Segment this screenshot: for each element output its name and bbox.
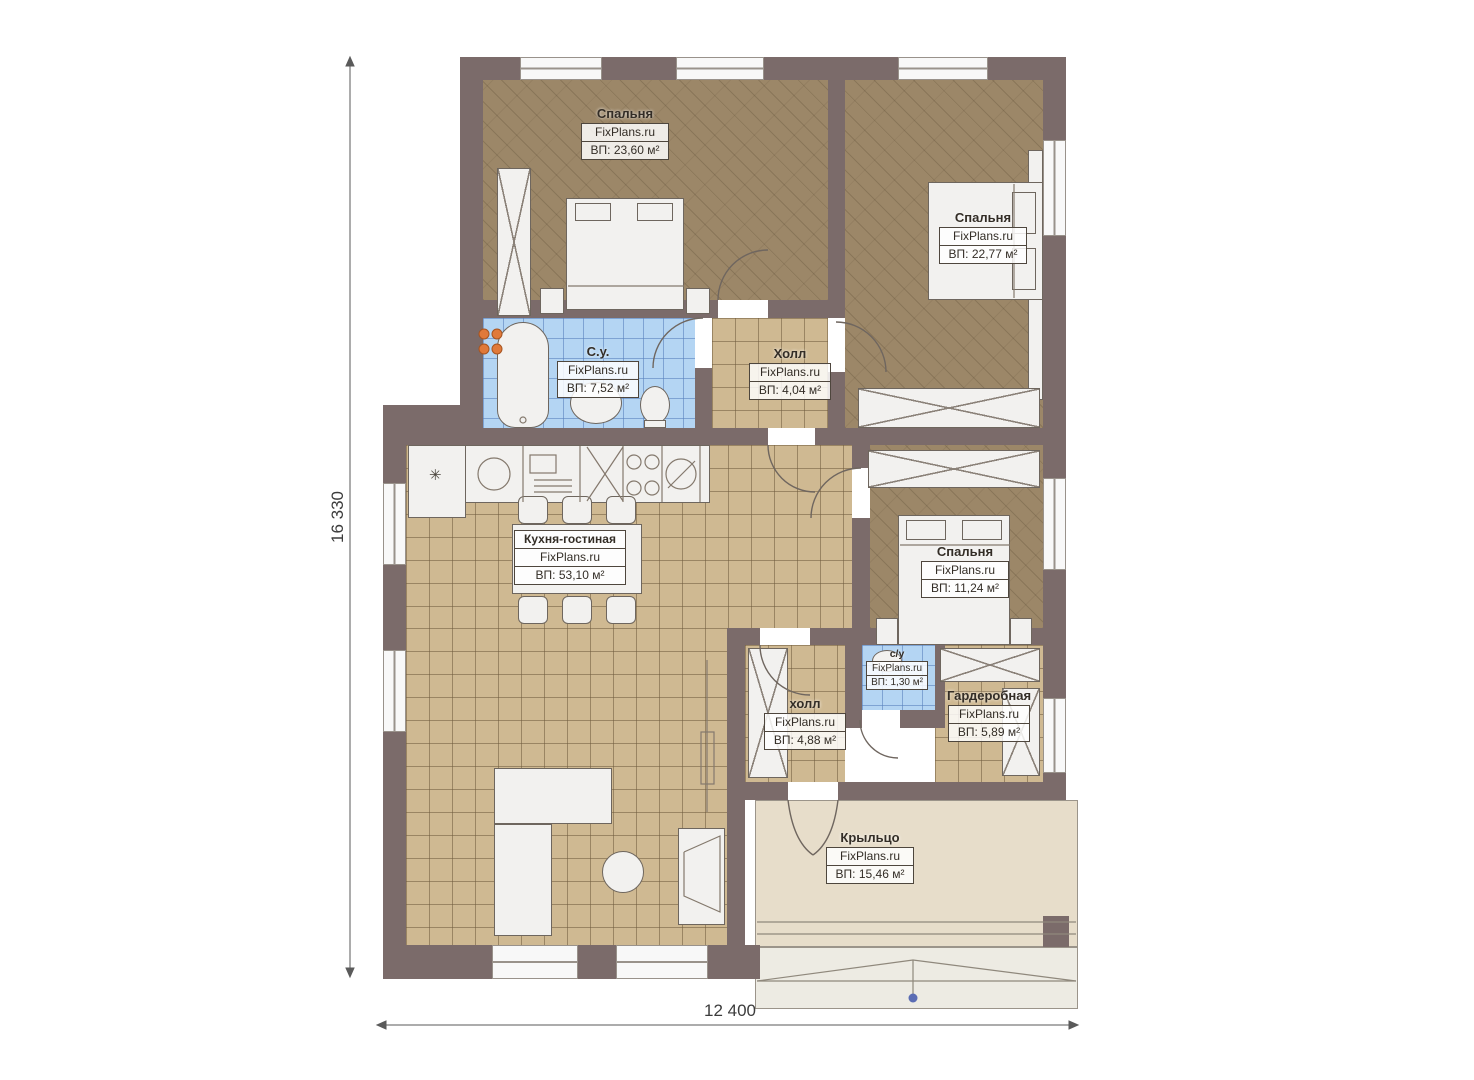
room-label-box: FixPlans.ru ВП: 4,04 м² [749, 363, 831, 400]
wall-hall2-left [727, 645, 745, 979]
room-name: холл [789, 696, 820, 711]
room-name: Спальня [955, 210, 1011, 225]
room-label-box: FixPlans.ru ВП: 23,60 м² [581, 123, 670, 160]
room-label-box: FixPlans.ru ВП: 7,52 м² [557, 361, 639, 398]
dining-chair [562, 496, 592, 524]
room-area: ВП: 4,88 м² [765, 731, 845, 749]
wall-bath-hall [695, 368, 712, 428]
brand-watermark: FixPlans.ru [867, 662, 927, 675]
porch-pillar [1043, 916, 1069, 947]
room-label-porch: Крыльцо FixPlans.ru ВП: 15,46 м² [790, 830, 950, 884]
window-left-2 [383, 650, 406, 732]
bedroom-2-wardrobe [858, 388, 1040, 428]
room-name: Гардеробная [947, 688, 1031, 703]
room-area: ВП: 53,10 м² [515, 566, 625, 584]
brand-watermark: FixPlans.ru [940, 228, 1027, 245]
brand-watermark: FixPlans.ru [582, 124, 669, 141]
brand-watermark: FixPlans.ru [558, 362, 638, 379]
room-area: ВП: 1,30 м² [867, 675, 927, 689]
bedroom-1-wardrobe [497, 168, 531, 316]
dining-chair [518, 596, 548, 624]
floor-plan-canvas: ✳ [0, 0, 1474, 1080]
room-area: ВП: 23,60 м² [582, 141, 669, 159]
room-label-bedroom-2: Спальня FixPlans.ru ВП: 22,77 м² [903, 210, 1063, 264]
window-top-2 [676, 57, 764, 80]
dining-chair [606, 496, 636, 524]
wardrobe-closet-top [940, 648, 1040, 682]
wall-mid-a [727, 628, 760, 645]
coffee-table [602, 851, 644, 893]
window-bottom-1 [492, 945, 578, 979]
brand-watermark: FixPlans.ru [922, 562, 1008, 579]
room-name: Кухня-гостиная [515, 531, 625, 548]
room-label-box: FixPlans.ru ВП: 11,24 м² [921, 561, 1009, 598]
brand-watermark: FixPlans.ru [750, 364, 830, 381]
room-label-kitchen-living: Кухня-гостиная FixPlans.ru ВП: 53,10 м² [490, 530, 650, 585]
wall-kitchen-top-a [406, 428, 768, 445]
bathroom-toilet-tank [644, 420, 666, 428]
room-name: С.у. [587, 344, 610, 359]
window-left-1 [383, 483, 406, 565]
room-label-bedroom-1: Спальня FixPlans.ru ВП: 23,60 м² [545, 106, 705, 160]
wall-bedroom1-bedroom2 [828, 80, 845, 300]
dimension-width-label: 12 400 [660, 1001, 800, 1021]
room-label-box: FixPlans.ru ВП: 1,30 м² [866, 661, 928, 690]
room-area: ВП: 4,04 м² [750, 381, 830, 399]
window-bottom-2 [616, 945, 708, 979]
wall-bedroom1-bottom-b [768, 300, 845, 318]
room-label-box: FixPlans.ru ВП: 22,77 м² [939, 227, 1028, 264]
window-top-3 [898, 57, 988, 80]
room-label-box: FixPlans.ru ВП: 4,88 м² [764, 713, 846, 750]
room-name: Спальня [937, 544, 993, 559]
wall-kitchen-right-b [852, 518, 870, 628]
bedroom-3-wardrobe [868, 450, 1040, 488]
bedroom-1-nightstand-right [686, 288, 710, 314]
boiler-icon: ✳ [429, 466, 442, 484]
bedroom-1-nightstand-left [540, 288, 564, 314]
brand-watermark: FixPlans.ru [515, 548, 625, 566]
room-label-box: FixPlans.ru ВП: 5,89 м² [948, 705, 1030, 742]
sofa-top-section [494, 768, 612, 824]
tv-stand [678, 828, 725, 925]
room-area: ВП: 7,52 м² [558, 379, 638, 397]
window-right-2 [1043, 478, 1066, 570]
room-area: ВП: 15,46 м² [827, 865, 914, 883]
wall-left-upper [460, 57, 483, 428]
room-area: ВП: 22,77 м² [940, 245, 1027, 263]
brand-watermark: FixPlans.ru [765, 714, 845, 731]
room-name: Крыльцо [840, 830, 899, 845]
dining-chair [606, 596, 636, 624]
room-name: с/у [890, 648, 905, 660]
bedroom-3-nightstand-left [876, 618, 898, 645]
room-label-wardrobe: Гардеробная FixPlans.ru ВП: 5,89 м² [909, 688, 1069, 742]
room-label-hall-2: холл FixPlans.ru ВП: 4,88 м² [747, 696, 863, 750]
bathtub [497, 322, 549, 428]
porch-steps [755, 947, 1078, 1009]
window-top-1 [520, 57, 602, 80]
bedroom-1-pillow-left [575, 203, 611, 221]
room-label-box: FixPlans.ru ВП: 15,46 м² [826, 847, 915, 884]
room-area: ВП: 5,89 м² [949, 723, 1029, 741]
bedroom-3-pillow-right [962, 520, 1002, 540]
room-label-bathroom: С.у. FixPlans.ru ВП: 7,52 м² [543, 344, 653, 398]
room-label-box: Кухня-гостиная FixPlans.ru ВП: 53,10 м² [514, 530, 626, 585]
wall-house-bottom-a [727, 782, 788, 800]
wall-kitchen-top-b [815, 428, 1043, 445]
dining-chair [518, 496, 548, 524]
bedroom-3-nightstand-right [1010, 618, 1032, 645]
room-label-bedroom-3: Спальня FixPlans.ru ВП: 11,24 м² [885, 544, 1045, 598]
bedroom-3-pillow-left [906, 520, 946, 540]
room-name: Спальня [597, 106, 653, 121]
dimension-height-label: 16 330 [328, 467, 348, 567]
room-name: Холл [774, 346, 807, 361]
wall-house-bottom-b [838, 782, 1066, 800]
dining-chair [562, 596, 592, 624]
room-area: ВП: 11,24 м² [922, 579, 1008, 597]
room-label-wc: с/у FixPlans.ru ВП: 1,30 м² [857, 648, 937, 690]
room-label-hall: Холл FixPlans.ru ВП: 4,04 м² [735, 346, 845, 400]
sofa-side-section [494, 824, 552, 936]
brand-watermark: FixPlans.ru [949, 706, 1029, 723]
kitchen-counter [465, 445, 710, 503]
bedroom-1-pillow-right [637, 203, 673, 221]
brand-watermark: FixPlans.ru [827, 848, 914, 865]
